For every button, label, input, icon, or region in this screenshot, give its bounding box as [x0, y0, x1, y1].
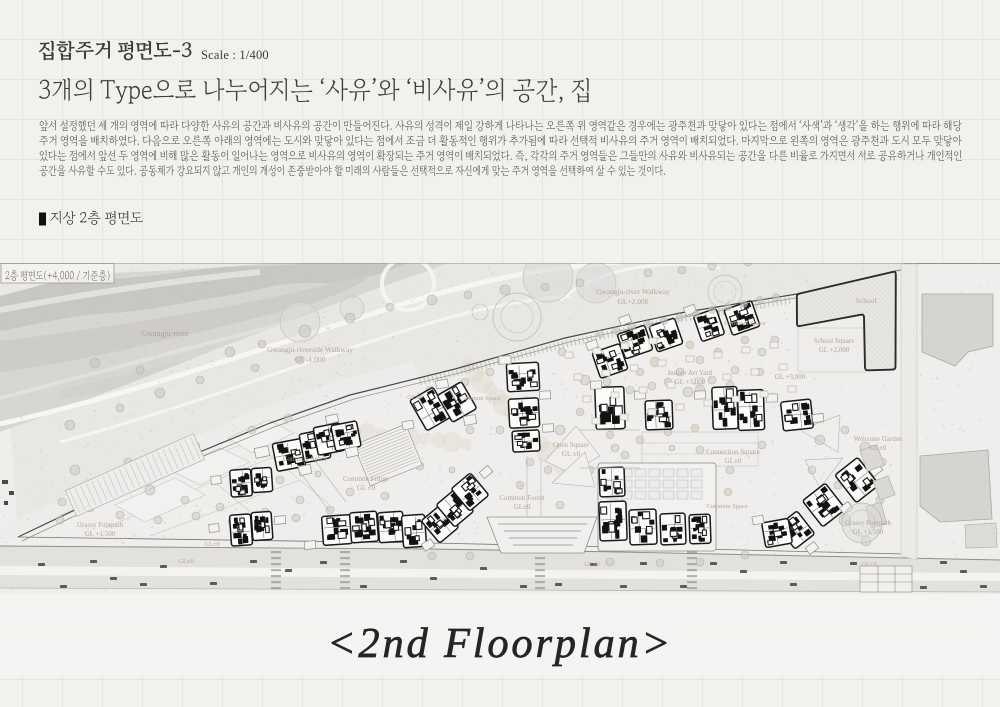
svg-text:GL±0: GL±0 [870, 444, 887, 452]
svg-text:School Square: School Square [814, 337, 855, 345]
svg-text:Common Forest: Common Forest [499, 494, 544, 502]
svg-text:GL±0: GL±0 [861, 561, 876, 568]
svg-text:Gwangju-river Walkway: Gwangju-river Walkway [596, 287, 670, 296]
svg-text:School: School [856, 296, 877, 305]
svg-text:Open Square: Open Square [553, 441, 589, 449]
svg-text:Grassy Footpath: Grassy Footpath [845, 519, 892, 527]
svg-text:Common Space: Common Space [283, 455, 328, 463]
svg-text:Common Fringe: Common Fringe [343, 475, 389, 483]
svg-text:Connection Square: Connection Square [706, 448, 759, 456]
svg-text:GL±0: GL±0 [725, 457, 742, 465]
svg-text:GL±0: GL±0 [584, 561, 599, 568]
svg-text:GL±0: GL±0 [204, 541, 219, 548]
svg-text:GL±0: GL±0 [407, 394, 422, 401]
svg-text:GL ±0: GL ±0 [562, 450, 581, 458]
svg-text:Welcome Garden: Welcome Garden [854, 435, 903, 443]
svg-text:Grassy Footpath: Grassy Footpath [77, 521, 124, 529]
svg-text:GL ±0: GL ±0 [357, 484, 376, 492]
svg-text:GL±0: GL±0 [514, 503, 531, 511]
svg-text:Gwangju-river: Gwangju-river [141, 329, 188, 338]
svg-text:Common Space: Common Space [459, 395, 500, 402]
svg-text:GL+2,000: GL+2,000 [617, 297, 648, 306]
svg-text:GL +2,000: GL +2,000 [819, 346, 850, 354]
svg-text:GL -1,000: GL -1,000 [295, 355, 326, 364]
svg-text:Common Space: Common Space [706, 503, 747, 510]
svg-text:Scale : 1/400: Scale : 1/400 [201, 48, 269, 62]
svg-text:Indoor Art Yard: Indoor Art Yard [668, 369, 713, 377]
svg-text:Gwangju-riverside Walkway: Gwangju-riverside Walkway [267, 345, 353, 354]
svg-text:GL +3,000: GL +3,000 [775, 373, 806, 381]
svg-text:Common Space: Common Space [724, 320, 765, 327]
svg-text:<2nd Floorplan>: <2nd Floorplan> [327, 620, 673, 667]
svg-text:GL +1,500: GL +1,500 [85, 530, 116, 538]
svg-text:GL +3,000: GL +3,000 [675, 378, 706, 386]
svg-text:GL +1,500: GL +1,500 [853, 528, 884, 536]
svg-text:GL±0: GL±0 [178, 558, 193, 565]
